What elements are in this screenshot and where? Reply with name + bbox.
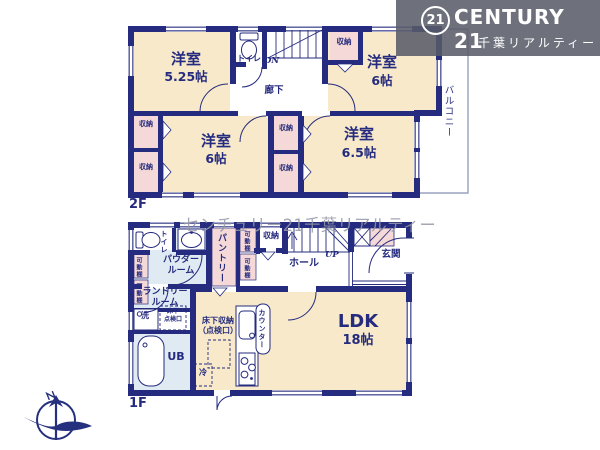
toilet-label-2f: トイレ: [234, 55, 264, 64]
brand-subtitle: 千葉リアルティー: [478, 34, 597, 51]
room2-size: 6帖: [358, 74, 406, 88]
brand-banner: 21 CENTURY 21 千葉リアルティー: [396, 0, 600, 56]
washer-label: 洗: [141, 312, 149, 321]
underfloor-hatch-label-2: 点検口: [160, 317, 186, 323]
underfloor-hatch-label-1: 床下: [162, 309, 184, 315]
bathtub-fixture: [138, 336, 164, 386]
stairs-down-label: DN: [264, 57, 279, 66]
underfloor-storage-label-2: （点検口）: [194, 327, 242, 336]
room3-size: 6帖: [190, 152, 242, 166]
shelf-label-r2: 可動棚: [243, 257, 249, 279]
ldk-size: 18帖: [326, 334, 390, 348]
balcony-label: バルコニー: [443, 76, 453, 146]
toilet-label-1f: トイレ: [160, 229, 167, 255]
room4-name: 洋室: [331, 126, 387, 142]
room3-name: 洋室: [190, 133, 242, 149]
brand-badge-icon: 21: [421, 6, 450, 35]
counter-label: カウンター: [258, 306, 265, 352]
room1-name: 洋室: [166, 51, 206, 67]
closet-label-2f-m2: 収納: [274, 165, 298, 173]
powder-room-label-2: ルーム: [158, 267, 204, 277]
closet-label-2f-tr: 収納: [331, 38, 357, 46]
stairs-up-label: UP: [325, 251, 339, 260]
pantry-label: パントリー: [216, 232, 225, 284]
closet-label-2f-l2: 収納: [135, 164, 157, 172]
powder-room-label-1: パウダー: [158, 256, 204, 266]
floorplan-image: 洋室 5.25帖 トイレ DN 廊下 収納 洋室 6帖 収納 収納 洋室 6帖 …: [0, 0, 600, 450]
ldk-label: LDK: [326, 312, 390, 331]
laundry-room-label-1: ランドリー: [138, 288, 192, 298]
floor1-label: 1F: [129, 397, 147, 411]
closet-label-2f-m1: 収納: [274, 125, 298, 133]
shelf-label-l1: 可動棚: [135, 256, 141, 278]
compass-north-icon: [16, 390, 108, 448]
laundry-room-label-2: ルーム: [138, 299, 192, 309]
entrance-label: 玄関: [372, 250, 410, 260]
floor2-label: 2F: [129, 198, 147, 212]
room1-size: 5.25帖: [152, 70, 220, 84]
room2-name: 洋室: [358, 54, 406, 70]
room4-size: 6.5帖: [331, 146, 387, 160]
fridge-label: 冷: [199, 369, 207, 378]
unit-bath-label: UB: [164, 351, 188, 363]
toilet-fixture-1f: [136, 232, 160, 248]
stairs-2f: [268, 30, 322, 58]
watermark-text: センチュリー21千葉リアルティー: [183, 211, 436, 236]
closet-label-2f-l1: 収納: [135, 121, 157, 129]
corridor-label: 廊下: [256, 86, 292, 96]
underfloor-storage-label-1: 床下収納: [194, 317, 242, 326]
hall-label: ホール: [282, 259, 326, 270]
